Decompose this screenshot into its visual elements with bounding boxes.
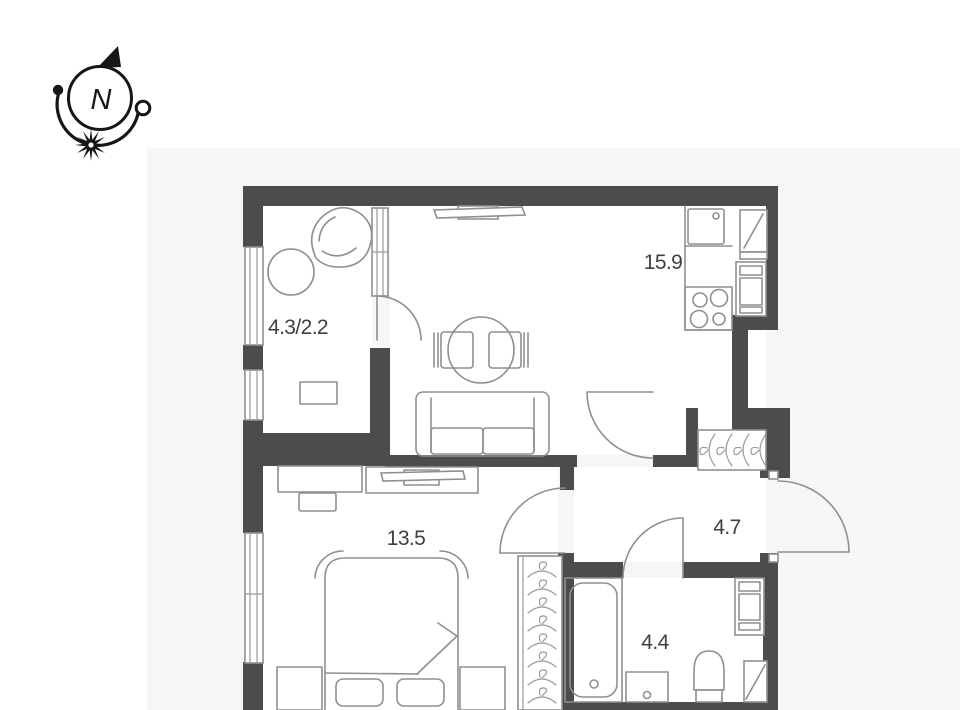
window-loggia-living-divider: [372, 208, 388, 296]
wall-top: [243, 186, 778, 206]
wall-left-pier-1: [243, 186, 263, 247]
floor-plan-canvas: 4.3/2.2 15.9 13.5 4.7 4.4 N: [0, 0, 960, 710]
wall-loggia-divider: [370, 348, 390, 436]
window-bedroom: [245, 533, 263, 663]
fridge: [740, 210, 767, 259]
compass-arc-dot: [53, 85, 63, 95]
wall-living-hall-right: [653, 455, 698, 467]
wall-kitchen-step: [732, 315, 778, 330]
wall-bath-top-right: [683, 562, 767, 578]
wall-bedroom-left-bottom: [243, 662, 263, 710]
oven-column: [736, 262, 766, 316]
window-loggia-lower: [245, 370, 263, 420]
sun-center: [88, 142, 93, 147]
wall-bath-top-left: [560, 562, 623, 578]
floor-plan-page: 4.3/2.2 15.9 13.5 4.7 4.4 N: [0, 0, 960, 710]
room-label-loggia: 4.3/2.2: [268, 316, 328, 339]
room-label-bedroom: 13.5: [387, 527, 425, 550]
coat-closet: [698, 430, 766, 470]
washing-machine: [735, 578, 764, 635]
pillow-right: [397, 679, 444, 706]
wall-bath-bottom: [562, 702, 778, 710]
wall-loggia-bottom: [243, 433, 390, 466]
window-loggia-upper: [245, 247, 263, 345]
water-heater: [744, 661, 767, 702]
floor-kitchen-lower: [653, 330, 732, 408]
wall-bedroom-left-top: [243, 466, 263, 533]
room-label-kitchen-living: 15.9: [644, 251, 682, 274]
wall-hall-stub: [560, 467, 574, 490]
wall-left-pier-2: [243, 345, 263, 370]
room-label-bathroom: 4.4: [641, 631, 669, 654]
floor-hallway: [574, 467, 766, 562]
wall-closet-left: [686, 408, 698, 455]
wardrobe-column: [518, 556, 562, 710]
pillow-left: [336, 679, 383, 706]
room-label-hallway: 4.7: [713, 516, 740, 539]
wall-kitchen-lower-right: [732, 330, 748, 412]
compass-north-letter: N: [91, 84, 112, 116]
compass-arc-ring: [136, 101, 150, 115]
